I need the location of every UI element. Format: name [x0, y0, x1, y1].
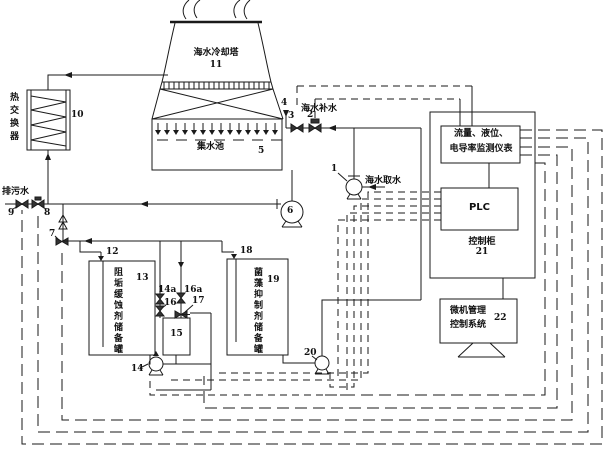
- instruments-label-line2: 电导率监测仪表: [444, 144, 518, 154]
- basin-label: 集水池: [197, 142, 224, 152]
- valve-16a-number: 16a: [184, 286, 202, 295]
- valve-14a-number: 14a: [158, 286, 176, 295]
- inhibitor-tank-label: 阻垢缓蚀剂储备罐: [112, 267, 122, 355]
- intake-water-label: 海水取水: [365, 176, 401, 186]
- dosing-pump-14: [140, 313, 211, 390]
- cabinet-number: 21: [471, 248, 493, 257]
- biocide-tank-number: 19: [267, 276, 280, 285]
- biocide-tank-label: 菌藻抑制剂储备罐: [252, 267, 262, 355]
- dosing-header: [55, 204, 237, 261]
- valve-7-number: 7: [49, 230, 55, 239]
- valve-16-number: 16: [164, 299, 177, 308]
- blowdown-valves: [13, 197, 46, 209]
- blowdown-label: 排污水: [2, 187, 29, 197]
- line-12-number: 12: [106, 248, 119, 257]
- plc-label: PLC: [441, 203, 518, 213]
- computer-label-line1: 微机管理: [450, 306, 486, 316]
- schematic-diagram: 海水冷却塔 11 集水池 5 热交换器 10 排污水 9 8 7 12 18 阻…: [0, 0, 608, 458]
- computer-label-line2: 控制系统: [450, 320, 486, 330]
- valve-8-number: 8: [44, 209, 50, 218]
- inhibitor-tank-number: 13: [136, 274, 149, 283]
- computer-number: 22: [494, 314, 507, 323]
- basin-number: 5: [258, 147, 264, 156]
- main-piping: [5, 72, 292, 207]
- line-4-number: 4: [281, 99, 287, 108]
- pump-6-number: 6: [287, 207, 293, 216]
- signal-lines-right: [22, 130, 602, 444]
- cabinet-label: 控制柜: [463, 237, 501, 247]
- heat-exchanger-number: 10: [71, 111, 84, 120]
- pump-1-number: 1: [331, 165, 337, 174]
- valve-9-number: 9: [8, 209, 14, 218]
- line-18-number: 18: [240, 247, 253, 256]
- heat-exchanger: [27, 90, 70, 150]
- pump-20-number: 20: [304, 349, 317, 358]
- dosing-pump-20: [283, 128, 421, 374]
- metering-tank-number: 15: [166, 330, 187, 339]
- heat-exchanger-label: 热交换器: [8, 92, 18, 152]
- valve-3-number: 3: [288, 112, 294, 121]
- cooling-tower-number: 11: [208, 61, 224, 70]
- diagram-lines: [0, 0, 608, 458]
- pump-14-number: 14: [131, 365, 144, 374]
- valve-17-number: 17: [192, 297, 205, 306]
- cooling-tower-label: 海水冷却塔: [176, 48, 256, 58]
- intake-pump: [338, 128, 385, 199]
- signal-lines-top: [297, 86, 472, 119]
- instruments-label-line1: 流量、液位、: [444, 129, 518, 139]
- valve-2-number: 2: [307, 111, 313, 120]
